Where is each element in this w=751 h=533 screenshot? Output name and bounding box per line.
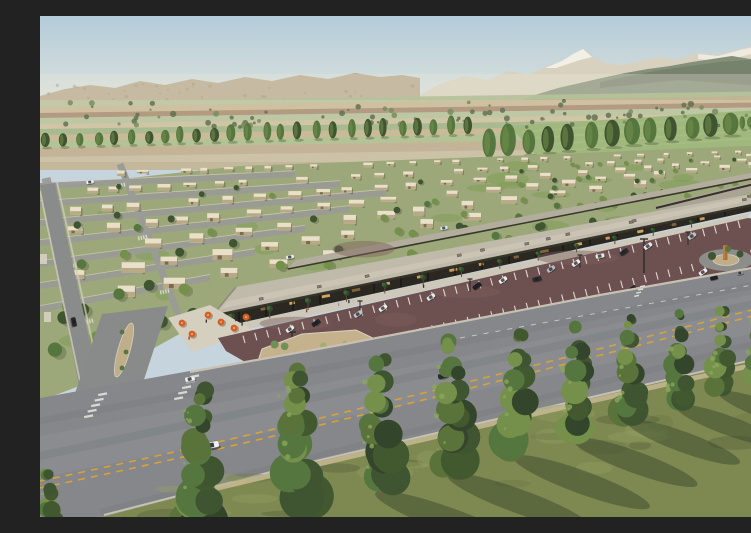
scene-canvas: [40, 16, 751, 517]
aerial-development-rendering: [40, 16, 751, 517]
